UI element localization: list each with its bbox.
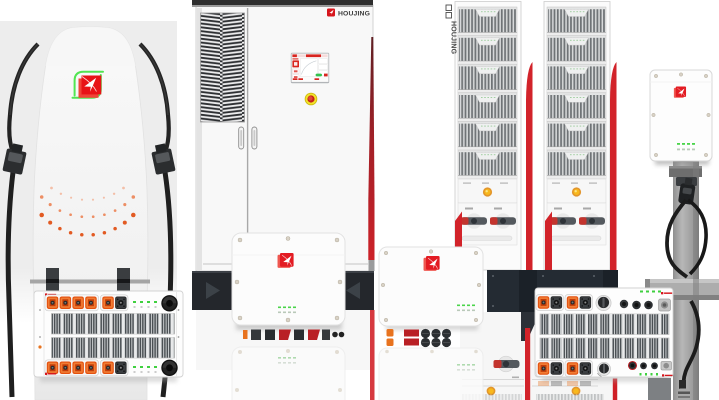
- svg-text:HOUJING: HOUJING: [450, 21, 457, 55]
- svg-text:HOUJING: HOUJING: [338, 11, 370, 18]
